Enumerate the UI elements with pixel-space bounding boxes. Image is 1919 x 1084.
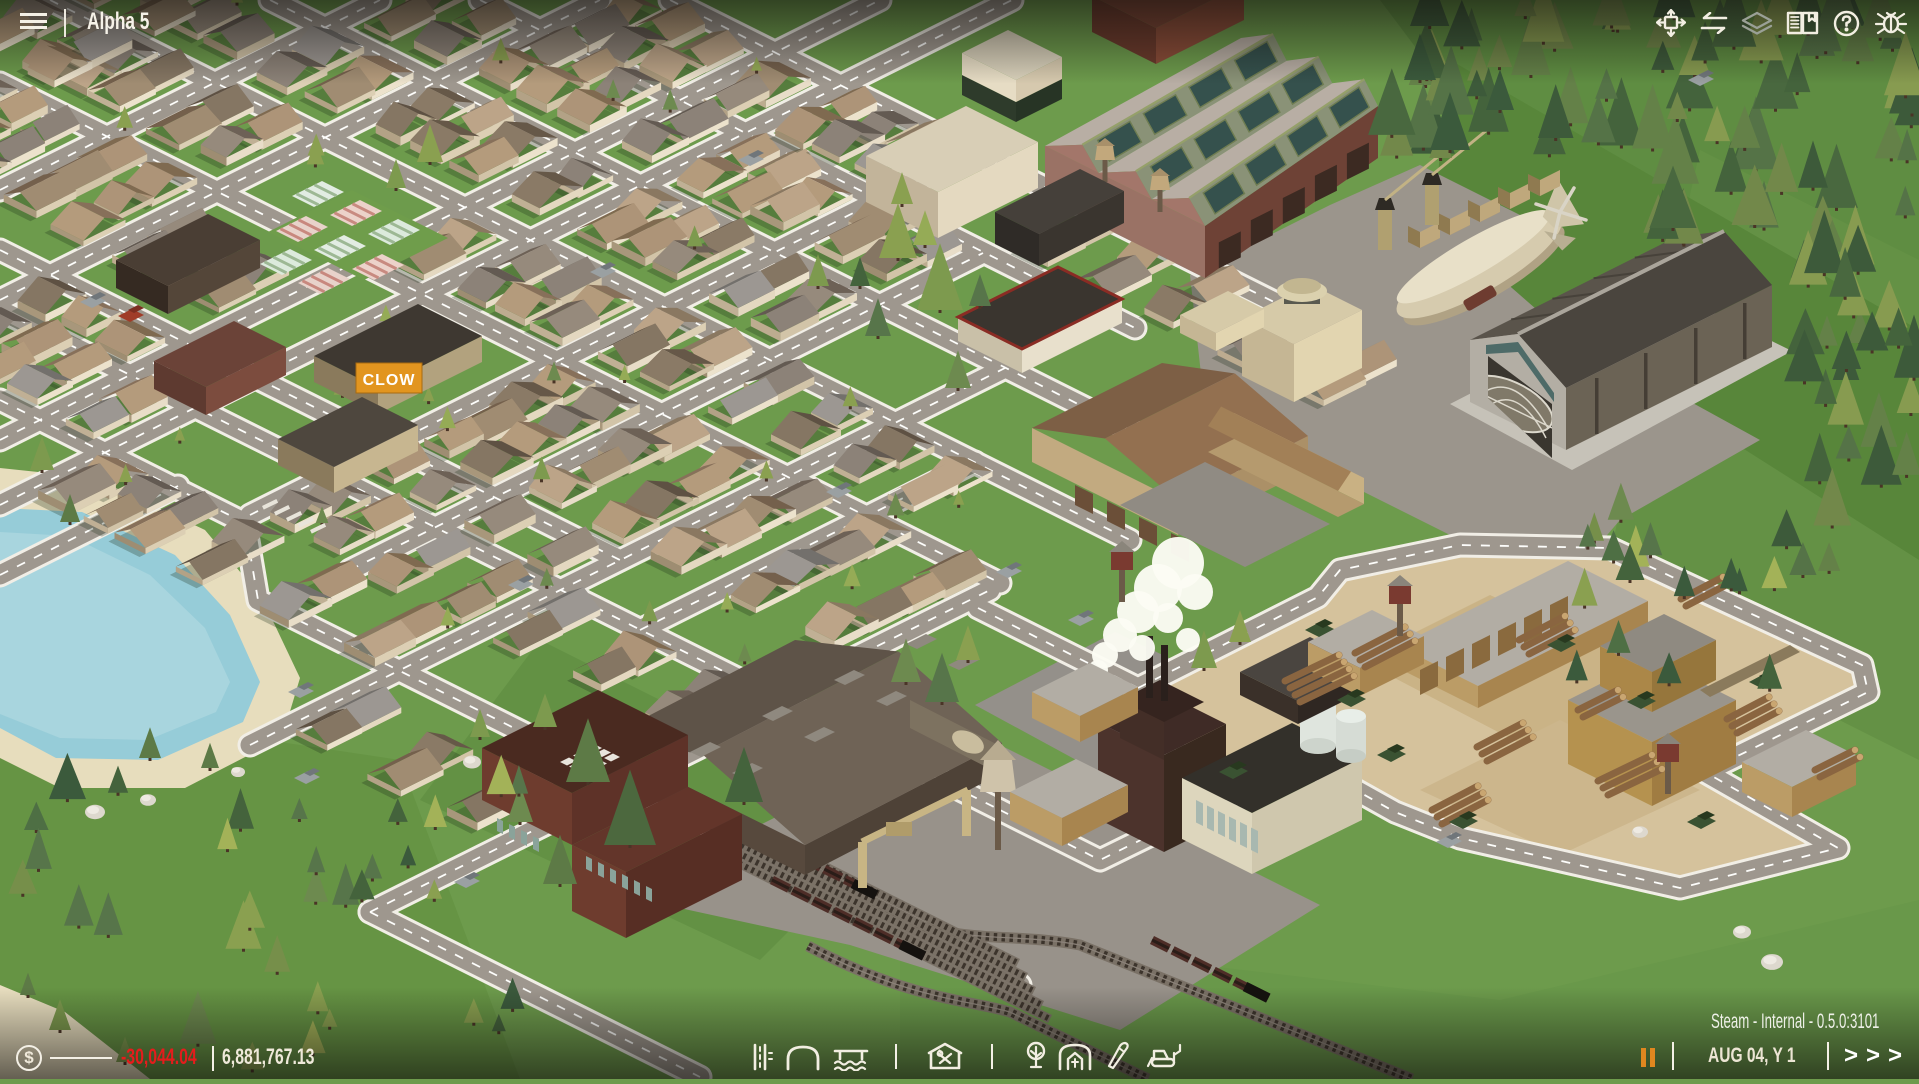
svg-text:CLOW: CLOW [363,372,416,389]
